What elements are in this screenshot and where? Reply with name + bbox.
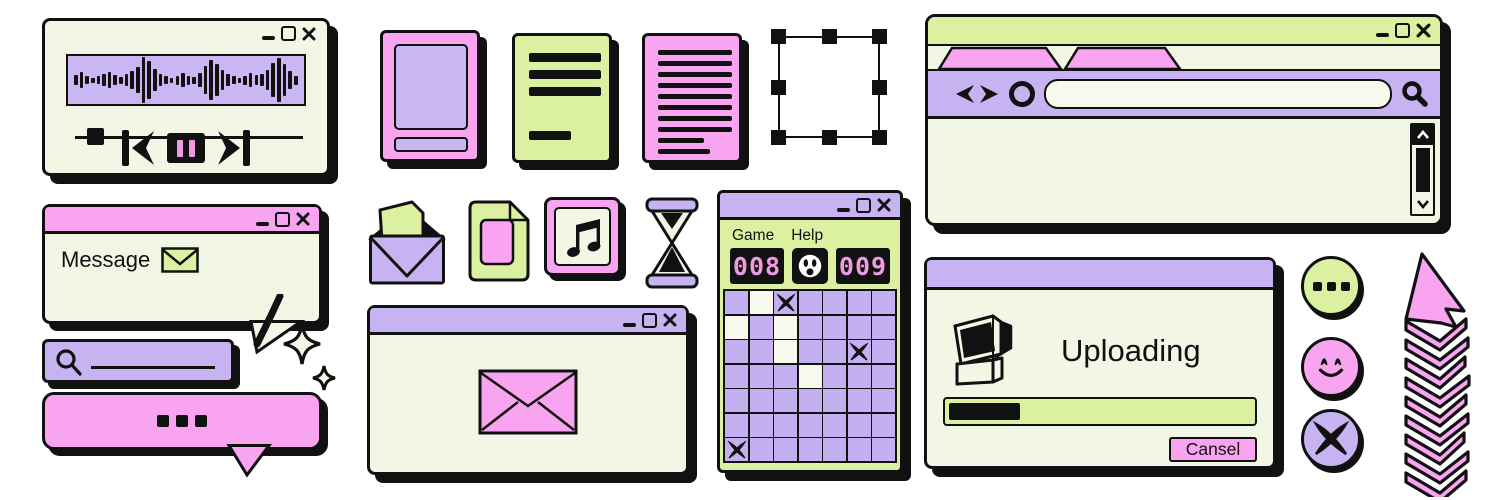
cancel-button[interactable]: Cansel xyxy=(1169,437,1257,462)
grid-cell[interactable] xyxy=(774,340,797,363)
waveform-bar xyxy=(277,58,281,102)
maximize-icon[interactable] xyxy=(1395,23,1410,38)
pause-bar xyxy=(189,140,195,157)
text-line xyxy=(658,116,732,121)
grid-cell[interactable] xyxy=(848,291,871,314)
next-track-icon[interactable] xyxy=(216,130,250,166)
grid-cell[interactable] xyxy=(750,414,773,437)
mail-envelope-icon[interactable] xyxy=(161,247,199,273)
close-icon[interactable] xyxy=(877,198,891,212)
waveform-bar xyxy=(176,76,180,85)
smiley-circle-sticker xyxy=(1301,337,1361,397)
mine-icon xyxy=(849,342,869,362)
minesweeper-grid[interactable] xyxy=(723,289,897,463)
chevron-up-icon xyxy=(1415,129,1431,141)
grid-cell[interactable] xyxy=(872,316,895,339)
grid-cell[interactable] xyxy=(799,438,822,461)
waveform-bar xyxy=(249,73,253,87)
surprised-face-icon xyxy=(795,251,825,281)
search-icon[interactable] xyxy=(1401,80,1428,107)
grid-cell[interactable] xyxy=(872,340,895,363)
resize-handle[interactable] xyxy=(872,130,887,145)
waveform-bar xyxy=(204,66,208,94)
waveform-bar xyxy=(97,76,101,84)
grid-cell[interactable] xyxy=(872,291,895,314)
menu-bar: Game Help xyxy=(720,220,900,245)
grid-cell[interactable] xyxy=(823,389,846,412)
grid-cell[interactable] xyxy=(848,316,871,339)
grid-cell[interactable] xyxy=(848,340,871,363)
search-bar[interactable] xyxy=(42,339,234,383)
grid-cell[interactable] xyxy=(750,438,773,461)
window-controls xyxy=(623,313,677,328)
back-forward-icons[interactable] xyxy=(954,83,1000,105)
upload-titlebar xyxy=(927,260,1273,290)
browser-content xyxy=(928,119,1440,223)
resize-handle[interactable] xyxy=(822,29,837,44)
close-circle-sticker xyxy=(1301,409,1361,469)
grid-cell[interactable] xyxy=(872,414,895,437)
envelope-icon[interactable] xyxy=(478,369,578,435)
text-line xyxy=(658,50,732,55)
grid-cell[interactable] xyxy=(872,389,895,412)
grid-cell[interactable] xyxy=(872,365,895,388)
grid-cell[interactable] xyxy=(774,389,797,412)
status-row: 008 009 xyxy=(730,248,890,284)
resize-handle[interactable] xyxy=(771,29,786,44)
window-controls xyxy=(1376,23,1431,38)
grid-cell[interactable] xyxy=(799,316,822,339)
text-line xyxy=(529,53,601,62)
playback-controls xyxy=(45,130,327,166)
grid-cell[interactable] xyxy=(750,316,773,339)
text-line xyxy=(529,70,601,79)
waveform-bar xyxy=(209,60,213,100)
resize-handle[interactable] xyxy=(872,80,887,95)
browser-titlebar xyxy=(928,17,1440,46)
ellipsis-dot xyxy=(1327,282,1336,291)
progress-fill xyxy=(949,403,1020,420)
waveform-bar xyxy=(215,64,219,96)
tab-1[interactable] xyxy=(939,48,1061,69)
waveform-bar xyxy=(266,70,270,90)
reload-icon[interactable] xyxy=(1009,81,1035,107)
grid-cell[interactable] xyxy=(848,438,871,461)
text-line xyxy=(658,127,732,132)
grid-cell[interactable] xyxy=(823,340,846,363)
music-file-icon[interactable] xyxy=(544,197,621,276)
grid-cell[interactable] xyxy=(799,389,822,412)
sparkle-star-small xyxy=(313,366,335,390)
close-icon[interactable] xyxy=(302,27,316,41)
grid-cell[interactable] xyxy=(774,316,797,339)
document-text-file[interactable] xyxy=(642,33,742,163)
close-icon[interactable] xyxy=(1416,23,1431,38)
grid-cell[interactable] xyxy=(823,365,846,388)
grid-cell[interactable] xyxy=(725,414,748,437)
waveform-bar xyxy=(226,74,230,86)
previous-track-icon[interactable] xyxy=(122,130,156,166)
waveform-bar xyxy=(192,77,196,84)
grid-cell[interactable] xyxy=(848,365,871,388)
grid-cell[interactable] xyxy=(872,438,895,461)
scroll-down-button[interactable] xyxy=(1412,194,1433,214)
minesweeper-window: Game Help 008 009 xyxy=(717,190,903,473)
waveform-bar xyxy=(85,76,89,84)
minimize-icon[interactable] xyxy=(1376,33,1389,37)
mail-window xyxy=(367,305,689,475)
retro-ui-collage: Message xyxy=(0,0,1500,500)
ellipsis-dot xyxy=(157,415,169,427)
search-input-line[interactable] xyxy=(91,366,215,369)
maximize-icon[interactable] xyxy=(856,198,871,213)
typing-bubble xyxy=(42,392,322,450)
waveform-bar xyxy=(181,73,185,87)
waveform-bar xyxy=(108,72,112,88)
pause-button[interactable] xyxy=(167,133,205,163)
mine-icon xyxy=(727,440,747,460)
pause-bar xyxy=(177,140,183,157)
grid-cell[interactable] xyxy=(725,438,748,461)
minimize-icon[interactable] xyxy=(262,36,275,40)
grid-cell[interactable] xyxy=(799,340,822,363)
tab-strip xyxy=(928,46,1440,69)
hourglass-icon xyxy=(644,197,700,289)
waveform-bar xyxy=(187,76,191,85)
grid-cell[interactable] xyxy=(725,340,748,363)
grid-cell[interactable] xyxy=(799,365,822,388)
grid-cell[interactable] xyxy=(848,414,871,437)
message-titlebar xyxy=(45,207,319,234)
waveform-bar xyxy=(170,78,174,83)
waveform-bar xyxy=(147,61,151,99)
waveform-bar xyxy=(153,69,157,91)
grid-cell[interactable] xyxy=(774,291,797,314)
waveform-bar xyxy=(142,57,146,103)
text-line xyxy=(658,149,710,154)
scroll-thumb[interactable] xyxy=(1416,148,1430,192)
waveform-bar xyxy=(255,75,259,85)
mail-body xyxy=(370,335,686,469)
smiley-face-icon xyxy=(1312,348,1350,386)
speech-tail xyxy=(223,444,273,478)
window-controls xyxy=(837,198,891,213)
x-mark-icon xyxy=(1312,420,1350,458)
waveform-bar xyxy=(91,78,95,83)
audio-player-window xyxy=(42,18,330,176)
grid-cell[interactable] xyxy=(774,365,797,388)
grid-cell[interactable] xyxy=(774,438,797,461)
ellipsis-dot xyxy=(1341,282,1350,291)
grid-cell[interactable] xyxy=(750,365,773,388)
sparkle-slash xyxy=(257,296,280,344)
music-note-icon xyxy=(562,216,604,258)
grid-cell[interactable] xyxy=(750,291,773,314)
waveform-bar xyxy=(102,74,106,86)
waveform-bar xyxy=(260,74,264,86)
waveform-bar xyxy=(271,63,275,97)
sparkle-star-large xyxy=(284,324,320,364)
text-line xyxy=(658,72,732,77)
search-icon xyxy=(55,349,83,377)
browser-tabs[interactable] xyxy=(936,46,1186,69)
face-button[interactable] xyxy=(792,248,828,284)
grid-cell[interactable] xyxy=(725,316,748,339)
open-envelope-icon[interactable] xyxy=(366,198,448,288)
minesweeper-titlebar xyxy=(720,193,900,220)
mail-titlebar xyxy=(370,308,686,335)
document-caption-bar xyxy=(394,137,468,152)
grid-area xyxy=(720,289,900,463)
text-line xyxy=(658,105,732,110)
waveform-bar xyxy=(130,71,134,89)
waveform-bar xyxy=(113,75,117,85)
text-line xyxy=(658,94,732,99)
grid-cell[interactable] xyxy=(725,365,748,388)
close-icon[interactable] xyxy=(296,212,310,226)
grid-cell[interactable] xyxy=(774,414,797,437)
document-image-file[interactable] xyxy=(380,30,480,162)
minimize-icon[interactable] xyxy=(623,323,636,327)
upload-dialog: Uploading Cansel xyxy=(924,257,1276,469)
ellipsis-dot xyxy=(1313,282,1322,291)
progress-bar xyxy=(943,397,1257,426)
mine-icon xyxy=(776,293,796,313)
music-icon-inner xyxy=(554,207,611,266)
ellipsis-dot xyxy=(195,415,207,427)
minimize-icon[interactable] xyxy=(256,222,269,226)
resize-handle[interactable] xyxy=(822,130,837,145)
close-icon[interactable] xyxy=(663,313,677,327)
file-icon[interactable] xyxy=(468,200,532,282)
waveform-bar xyxy=(294,76,298,85)
grid-cell[interactable] xyxy=(823,438,846,461)
waveform-bar xyxy=(119,77,123,84)
chevron-down-icon xyxy=(1415,198,1431,210)
grid-cell[interactable] xyxy=(823,414,846,437)
upload-status-label: Uploading xyxy=(1061,333,1201,369)
waveform-bar xyxy=(80,72,84,88)
waveform-bar xyxy=(238,78,242,83)
address-bar-input[interactable] xyxy=(1044,79,1392,109)
resize-handle[interactable] xyxy=(872,29,887,44)
computer-icon xyxy=(947,308,1013,386)
mine-counter: 008 xyxy=(730,248,784,284)
text-line xyxy=(658,61,732,66)
scrollbar[interactable] xyxy=(1410,123,1435,216)
menu-item-game[interactable]: Game xyxy=(732,227,774,245)
document-headings-file[interactable] xyxy=(512,33,612,163)
waveform-bar xyxy=(74,75,78,85)
waveform-bar xyxy=(136,67,140,93)
window-controls xyxy=(256,212,310,227)
text-line xyxy=(658,138,704,143)
maximize-icon[interactable] xyxy=(642,313,657,328)
waveform-bar xyxy=(159,74,163,86)
grid-cell[interactable] xyxy=(750,389,773,412)
waveform-bar xyxy=(232,76,236,84)
menu-item-help[interactable]: Help xyxy=(791,227,823,245)
minimize-icon[interactable] xyxy=(837,208,850,212)
browser-window xyxy=(925,14,1443,226)
maximize-icon[interactable] xyxy=(281,26,296,41)
grid-cell[interactable] xyxy=(799,414,822,437)
grid-cell[interactable] xyxy=(799,291,822,314)
text-line xyxy=(529,87,601,96)
resize-handle[interactable] xyxy=(771,130,786,145)
resize-handle[interactable] xyxy=(771,80,786,95)
waveform-bar xyxy=(198,73,202,87)
text-line xyxy=(658,83,732,88)
text-line xyxy=(529,131,571,140)
waveform-bar xyxy=(164,76,168,84)
waveform-bar xyxy=(288,71,292,89)
grid-cell[interactable] xyxy=(725,389,748,412)
ellipsis-dot xyxy=(176,415,188,427)
document-image-placeholder xyxy=(394,44,468,130)
timer-counter: 009 xyxy=(836,248,890,284)
cursor-arrow-trail xyxy=(1396,251,1498,497)
maximize-icon[interactable] xyxy=(275,212,290,227)
scroll-up-button[interactable] xyxy=(1412,125,1433,145)
waveform-bar xyxy=(283,64,287,96)
waveform-bar xyxy=(221,70,225,90)
waveform-bar xyxy=(125,74,129,86)
grid-cell[interactable] xyxy=(750,340,773,363)
grid-cell[interactable] xyxy=(823,291,846,314)
waveform-bar xyxy=(243,76,247,85)
sparkles xyxy=(250,294,350,398)
grid-cell[interactable] xyxy=(823,316,846,339)
ellipsis-circle-sticker xyxy=(1301,256,1361,316)
waveform xyxy=(66,54,306,106)
grid-cell[interactable] xyxy=(725,291,748,314)
message-body: Message xyxy=(45,234,319,286)
browser-toolbar xyxy=(928,69,1440,119)
grid-cell[interactable] xyxy=(848,389,871,412)
selection-frame xyxy=(778,36,880,138)
message-label: Message xyxy=(61,247,150,273)
window-controls xyxy=(262,26,316,41)
tab-2[interactable] xyxy=(1065,48,1180,69)
